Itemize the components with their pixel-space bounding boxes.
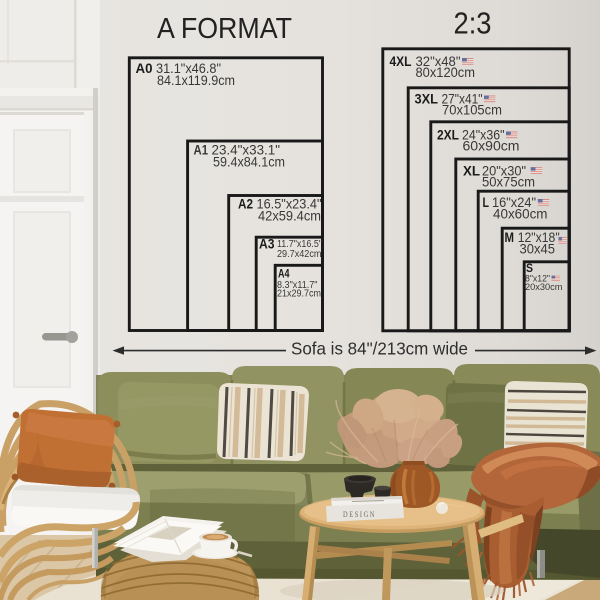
svg-text:A3: A3 [259,237,275,252]
svg-text:30x45: 30x45 [520,242,556,257]
svg-text:L: L [483,195,490,210]
svg-text:A FORMAT: A FORMAT [157,13,292,45]
svg-text:XL: XL [463,163,480,178]
svg-text:60x90cm: 60x90cm [463,139,520,154]
svg-text:21x29.7cm: 21x29.7cm [277,289,321,300]
svg-text:Sofa is 84"/213cm wide: Sofa is 84"/213cm wide [291,339,468,359]
svg-text:2XL: 2XL [437,128,459,143]
svg-text:70x105cm: 70x105cm [442,103,502,118]
svg-text:A4: A4 [278,267,290,281]
svg-text:40x60cm: 40x60cm [493,206,548,221]
svg-text:4XL: 4XL [390,54,412,69]
svg-text:42x59.4cm: 42x59.4cm [258,208,321,223]
svg-text:M: M [505,230,515,245]
svg-text:80x120cm: 80x120cm [416,65,476,80]
svg-text:20x30cm: 20x30cm [525,282,563,293]
svg-text:2:3: 2:3 [454,6,492,41]
svg-text:A2: A2 [238,197,253,212]
svg-text:A0: A0 [136,61,153,76]
svg-text:3XL: 3XL [415,92,439,107]
svg-text:29.7x42cm: 29.7x42cm [277,249,322,260]
svg-text:DESIGN: DESIGN [343,510,376,519]
svg-text:84.1x119.9cm: 84.1x119.9cm [157,73,235,88]
svg-text:59.4x84.1cm: 59.4x84.1cm [213,154,285,169]
svg-text:A1: A1 [194,143,209,158]
svg-text:50x75cm: 50x75cm [482,174,535,189]
